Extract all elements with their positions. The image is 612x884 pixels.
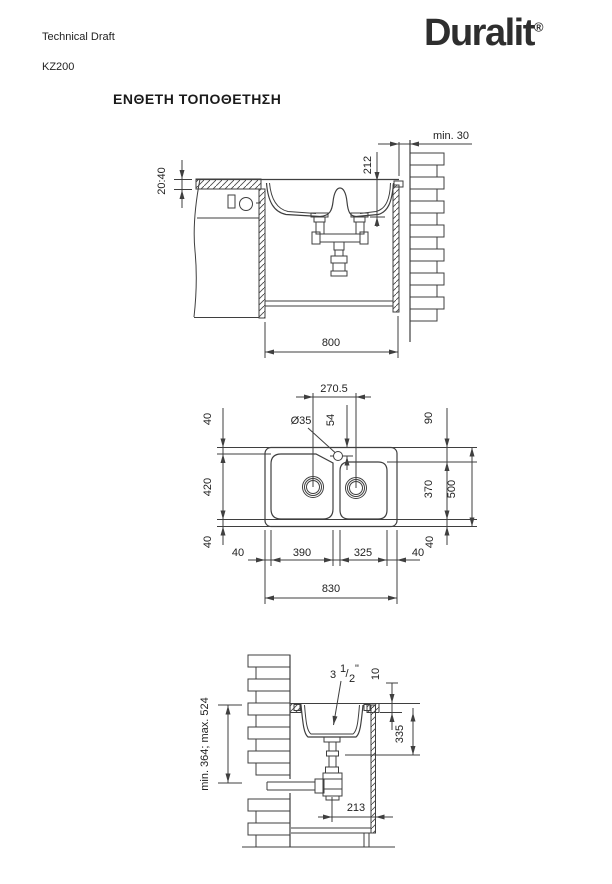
trap-body xyxy=(331,256,347,263)
faucet-diameter-leader xyxy=(308,428,335,453)
dim-right-column xyxy=(447,408,472,545)
label-overall-depth: 500 xyxy=(446,480,458,498)
label-bottom-margin-left: 40 xyxy=(202,536,214,548)
side-panel xyxy=(371,705,376,833)
control-knob xyxy=(240,198,253,211)
label-depth-to-drain: 212 xyxy=(362,156,374,174)
label-faucet-offset: 54 xyxy=(325,414,337,426)
sink-section-side xyxy=(294,705,370,738)
label-top-margin-left: 40 xyxy=(202,413,214,425)
label-drain-size-whole: 3 xyxy=(330,669,336,681)
label-cabinet-width: 800 xyxy=(322,337,340,349)
bottle-trap xyxy=(323,773,342,796)
right-bowl xyxy=(340,462,387,519)
brick-wall-front xyxy=(410,140,444,342)
dim-trap-height-range xyxy=(218,705,242,783)
sink-outline-plan xyxy=(265,448,397,527)
sink-section xyxy=(267,181,404,217)
label-left-bowl-width: 390 xyxy=(293,547,311,559)
brick-wall-side xyxy=(248,655,290,847)
dim-wall-clearance xyxy=(378,142,472,176)
dim-rim-height xyxy=(386,683,398,730)
dim-countertop-thickness xyxy=(174,160,192,208)
label-trap-height-range: min. 364; max. 524 xyxy=(199,697,211,791)
break-line xyxy=(194,179,200,317)
cabinet-side xyxy=(242,705,395,847)
label-drain-to-wall: 213 xyxy=(347,802,365,814)
label-overall-width: 830 xyxy=(322,583,340,595)
faucet-hole xyxy=(330,452,353,461)
label-top-margin-right: 90 xyxy=(423,412,435,424)
label-edge-margin-left: 40 xyxy=(232,547,244,559)
label-drain-size-unit: " xyxy=(355,663,359,675)
countertop-side xyxy=(290,704,420,713)
label-drain-spacing: 270.5 xyxy=(320,383,348,395)
drain-assembly-side xyxy=(267,737,342,800)
label-wall-clearance: min. 30 xyxy=(433,130,469,142)
label-right-bowl-width: 325 xyxy=(354,547,372,559)
technical-drawing-canvas: min. 30 212 20:40 800 270.5 Ø35 54 40 42… xyxy=(0,0,612,884)
left-side-panel xyxy=(259,189,265,318)
label-depth-to-trap: 335 xyxy=(394,725,406,743)
dim-depth-to-trap xyxy=(345,708,420,755)
countertop-front xyxy=(196,179,399,189)
label-left-bowl-length: 420 xyxy=(202,478,214,496)
label-countertop-thickness: 20:40 xyxy=(156,167,168,195)
label-edge-margin-right: 40 xyxy=(412,547,424,559)
left-cabinet-front xyxy=(194,179,261,318)
label-right-bowl-length: 370 xyxy=(423,480,435,498)
brick-courses xyxy=(248,655,290,847)
label-faucet-diameter: Ø35 xyxy=(291,415,312,427)
front-section-view xyxy=(174,140,472,358)
right-side-panel xyxy=(393,185,399,312)
label-bottom-margin-right: 40 xyxy=(424,536,436,548)
plan-view xyxy=(217,393,477,604)
side-section-view xyxy=(218,655,420,847)
control-switch xyxy=(228,195,235,208)
drain-assembly-front xyxy=(311,213,368,276)
brick-courses xyxy=(410,153,444,321)
cabinet-structure xyxy=(259,185,399,318)
label-rim-height: 10 xyxy=(370,668,382,680)
